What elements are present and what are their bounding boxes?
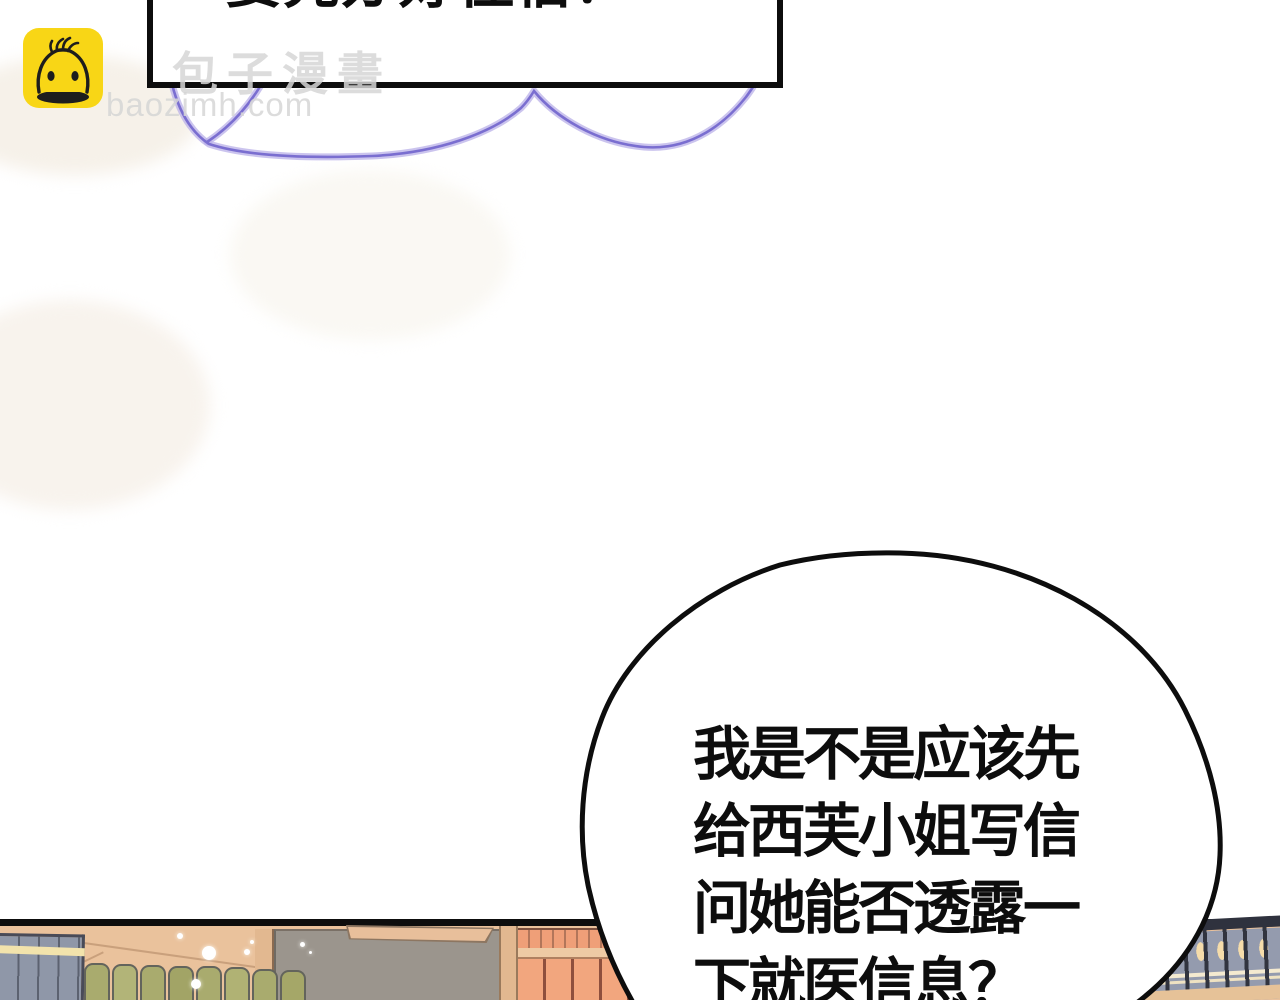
small-book-row <box>518 928 658 948</box>
book-stripe <box>0 945 85 956</box>
background-blob <box>230 170 510 340</box>
speech-bubble <box>0 0 1280 1000</box>
caption-text: 要先办好住宿！ <box>225 0 631 12</box>
sparkle <box>250 940 254 944</box>
cabinet-sign-board-face <box>348 927 492 941</box>
speech-line: 下就医信息？ <box>693 947 1078 1000</box>
speech-line: 问她能否透露一 <box>693 870 1078 947</box>
speech-bubble-text: 我是不是应该先 给西芙小姐写信 问她能否透露一 下就医信息？ <box>693 716 1078 1000</box>
green-book <box>280 970 306 1000</box>
green-book <box>140 965 166 1000</box>
shelf-board <box>518 948 658 959</box>
comic-page: 要先办好住宿！ 包子漫畫 baozimh.com 我是不是应该先 给西芙小姐写信… <box>0 0 1280 1000</box>
balcony-railing <box>1126 912 1280 1000</box>
salmon-book-spines <box>518 959 658 1000</box>
baozi-logo-icon <box>23 28 103 108</box>
sparkle <box>191 979 201 989</box>
salmon-bookshelf <box>518 926 658 1000</box>
shelf-post <box>499 926 518 1000</box>
blue-book-spines <box>0 933 85 1000</box>
sparkle <box>300 942 305 947</box>
green-book <box>112 964 138 1000</box>
watermark-url-text: baozimh.com <box>106 86 313 124</box>
green-book <box>224 967 250 1000</box>
railing-posts <box>1127 925 1280 993</box>
sparkle <box>177 933 183 939</box>
sparkle <box>244 949 250 955</box>
green-book <box>252 969 278 1000</box>
thought-bubble-outline <box>0 0 1280 1000</box>
green-book <box>84 963 110 1000</box>
sparkle <box>202 946 216 960</box>
speech-line: 给西芙小姐写信 <box>693 793 1078 870</box>
sparkle <box>309 951 312 954</box>
speech-line: 我是不是应该先 <box>693 716 1078 793</box>
bottom-panel-scene <box>0 912 1280 1000</box>
background-blob <box>0 300 210 510</box>
